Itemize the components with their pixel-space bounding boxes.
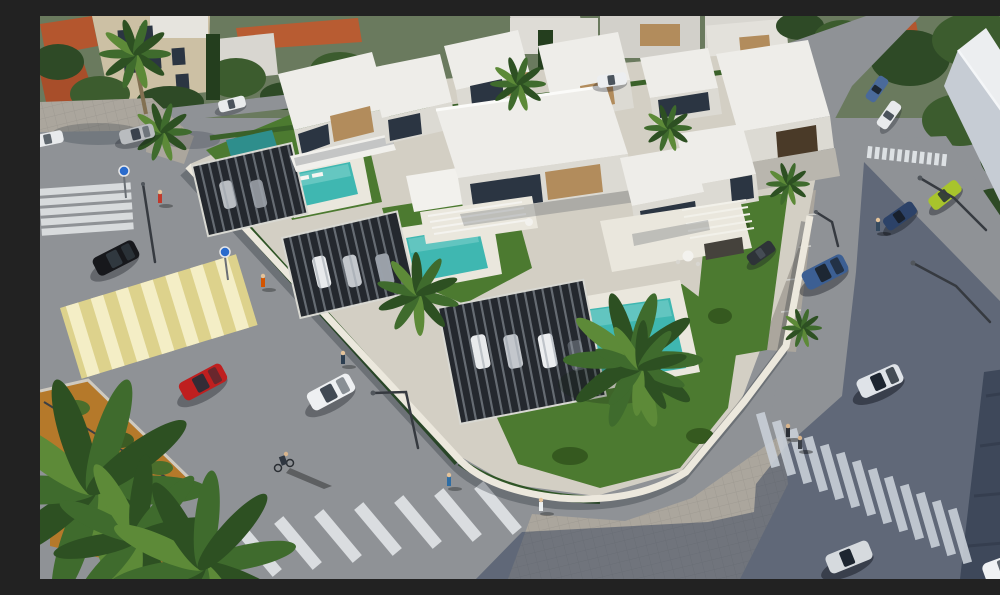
aerial-render [40, 16, 1000, 579]
parasol [525, 218, 533, 226]
villa-5 [640, 48, 722, 124]
render-canvas [40, 16, 1000, 579]
